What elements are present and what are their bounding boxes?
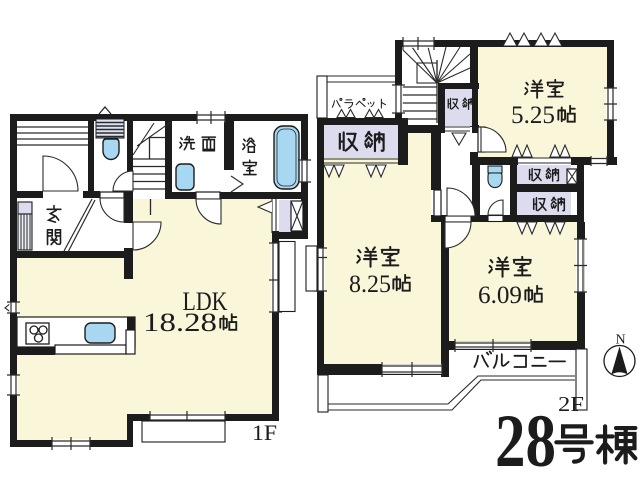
svg-text:28: 28 <box>495 400 556 480</box>
svg-text:N: N <box>615 333 625 348</box>
svg-text:8.25: 8.25 <box>349 271 391 298</box>
svg-text:5.25: 5.25 <box>511 102 555 129</box>
svg-text:18.28: 18.28 <box>143 308 217 337</box>
svg-text:2F: 2F <box>558 392 584 416</box>
svg-text:6.09: 6.09 <box>478 282 522 309</box>
svg-text:1F: 1F <box>252 420 277 445</box>
